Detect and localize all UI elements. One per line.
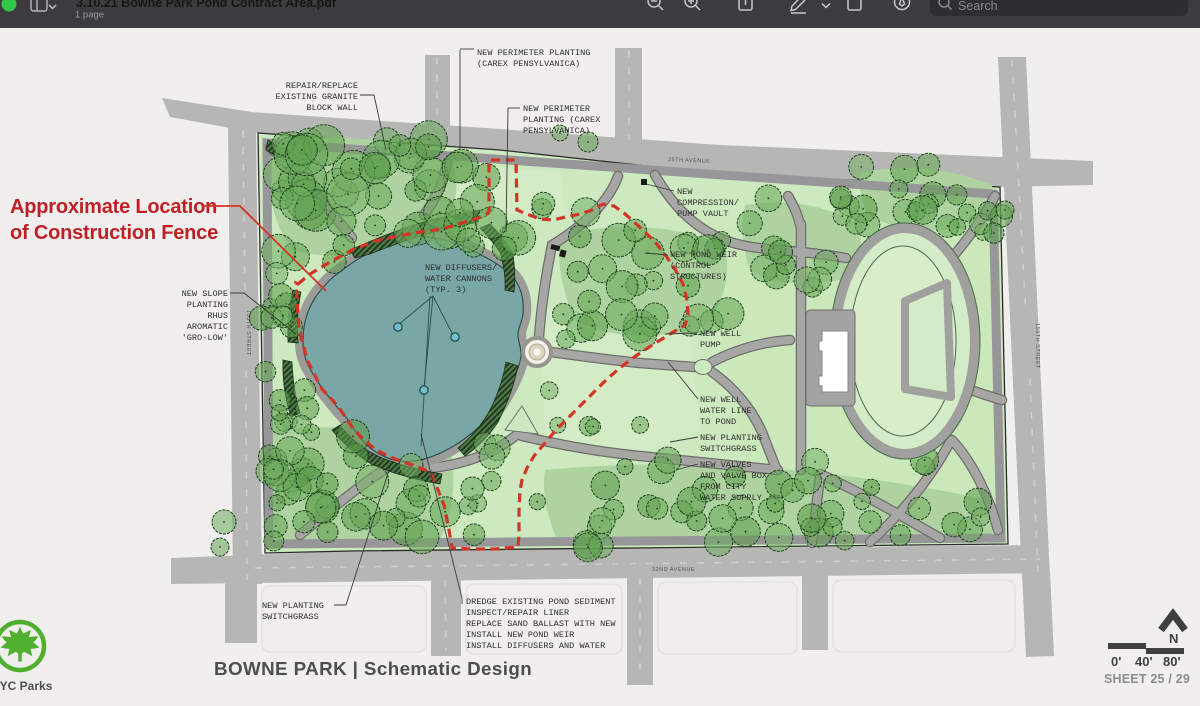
- svg-text:COMPRESSION/: COMPRESSION/: [677, 198, 739, 208]
- svg-text:STRUCTURES): STRUCTURES): [670, 272, 727, 282]
- svg-text:FROM CITY: FROM CITY: [700, 482, 746, 492]
- svg-text:159TH STREET: 159TH STREET: [1034, 323, 1040, 369]
- svg-text:32ND AVENUE: 32ND AVENUE: [652, 567, 695, 573]
- svg-text:(TYP. 3): (TYP. 3): [425, 285, 466, 295]
- svg-text:NEW PERIMETER: NEW PERIMETER: [523, 104, 590, 114]
- svg-text:1 page: 1 page: [75, 10, 104, 21]
- svg-text:SWITCHGRASS: SWITCHGRASS: [700, 444, 757, 454]
- svg-text:0': 0': [1111, 654, 1121, 669]
- svg-text:NEW: NEW: [677, 187, 693, 197]
- svg-text:REPLACE SAND BALLAST WITH NEW: REPLACE SAND BALLAST WITH NEW: [466, 619, 616, 629]
- svg-text:SWITCHGRASS: SWITCHGRASS: [262, 612, 319, 622]
- svg-text:NYC Parks: NYC Parks: [0, 679, 53, 693]
- svg-text:'GRO-LOW': 'GRO-LOW': [182, 333, 228, 343]
- svg-text:3.10.21 Bowne Park Pond Contra: 3.10.21 Bowne Park Pond Contract Area.pd…: [76, 0, 337, 10]
- svg-text:NEW VALVES: NEW VALVES: [700, 460, 752, 470]
- svg-text:40': 40': [1135, 654, 1153, 669]
- svg-text:WATER CANNONS: WATER CANNONS: [425, 274, 492, 284]
- svg-text:PLANTING (CAREX: PLANTING (CAREX: [523, 115, 600, 125]
- svg-text:Search: Search: [958, 0, 998, 13]
- svg-text:NEW WELL: NEW WELL: [700, 329, 741, 339]
- svg-text:NEW PERIMETER PLANTING: NEW PERIMETER PLANTING: [477, 48, 590, 58]
- svg-text:of Construction Fence: of Construction Fence: [10, 222, 218, 244]
- svg-text:TO POND: TO POND: [700, 417, 736, 427]
- svg-text:NEW PLANTING: NEW PLANTING: [262, 601, 324, 611]
- svg-text:PUMP VAULT: PUMP VAULT: [677, 209, 729, 219]
- svg-text:RHUS: RHUS: [207, 311, 228, 321]
- svg-text:SHEET 25 / 29: SHEET 25 / 29: [1104, 672, 1190, 686]
- svg-text:NEW WELL: NEW WELL: [700, 395, 741, 405]
- svg-text:AROMATIC: AROMATIC: [187, 322, 228, 332]
- svg-text:Approximate Location: Approximate Location: [10, 196, 217, 218]
- svg-text:INSTALL NEW POND WEIR: INSTALL NEW POND WEIR: [466, 630, 574, 640]
- svg-text:BOWNE PARK | Schematic Design: BOWNE PARK | Schematic Design: [214, 658, 532, 679]
- svg-text:INSTALL DIFFUSERS AND WATER: INSTALL DIFFUSERS AND WATER: [466, 641, 605, 651]
- svg-text:WATER LINE: WATER LINE: [700, 406, 752, 416]
- svg-text:(CAREX PENSYLVANICA): (CAREX PENSYLVANICA): [477, 59, 580, 69]
- svg-text:EXISTING GRANITE: EXISTING GRANITE: [275, 92, 358, 102]
- svg-text:PENSYLVANICA): PENSYLVANICA): [523, 126, 590, 136]
- svg-text:N: N: [1169, 631, 1178, 646]
- svg-text:AND VALVE BOX: AND VALVE BOX: [700, 471, 767, 481]
- svg-text:(CONTROL: (CONTROL: [670, 261, 711, 271]
- svg-text:PLANTING: PLANTING: [187, 300, 228, 310]
- svg-text:BLOCK WALL: BLOCK WALL: [306, 103, 358, 113]
- svg-text:NEW SLOPE: NEW SLOPE: [182, 289, 228, 299]
- svg-text:DREDGE EXISTING POND SEDIMENT: DREDGE EXISTING POND SEDIMENT: [466, 597, 616, 607]
- svg-text:NEW POND WEIR: NEW POND WEIR: [670, 250, 737, 260]
- svg-text:REPAIR/REPLACE: REPAIR/REPLACE: [286, 81, 358, 91]
- svg-text:80': 80': [1163, 654, 1181, 669]
- svg-text:PUMP: PUMP: [700, 340, 721, 350]
- svg-text:WATER SUPPLY: WATER SUPPLY: [700, 493, 762, 503]
- svg-text:INSPECT/REPAIR LINER: INSPECT/REPAIR LINER: [466, 608, 569, 618]
- svg-text:NEW PLANTING: NEW PLANTING: [700, 433, 762, 443]
- svg-text:NEW DIFFUSERS/: NEW DIFFUSERS/: [425, 263, 497, 273]
